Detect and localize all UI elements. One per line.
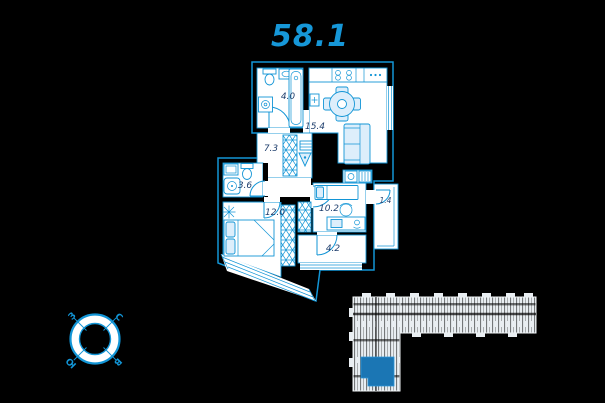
washing-machine-2-icon	[345, 171, 357, 182]
total-area-title: 58.1	[271, 19, 349, 54]
double-bed-icon	[224, 220, 274, 256]
door-opening-balcony	[366, 190, 376, 204]
fridge-icon	[370, 74, 381, 76]
window-kitchen	[387, 86, 393, 130]
label-bathroom: 4.0	[281, 92, 296, 102]
single-bed-icon	[315, 186, 358, 200]
label-kitchen-living: 15.4	[305, 122, 325, 132]
label-loggia: 4.2	[326, 244, 341, 254]
door-opening-bathroom	[268, 128, 290, 133]
window-loggia	[300, 263, 362, 270]
label-bedroom: 12.0	[265, 208, 285, 218]
door-opening-loggia	[317, 232, 337, 235]
label-balcony: 1.4	[380, 196, 392, 205]
shelving-icon	[300, 141, 312, 150]
washing-machine-icon	[259, 97, 273, 112]
plan-canvas: 58.1	[0, 0, 605, 403]
room-balcony	[374, 184, 398, 249]
washbasin-icon	[224, 164, 238, 175]
label-wc: 3.6	[238, 181, 253, 191]
plant-icon	[223, 206, 236, 219]
water-heater-icon	[310, 94, 319, 106]
floor-plan-screenshot: 58.1	[0, 0, 605, 403]
label-bedroom-2: 10.2	[319, 204, 339, 214]
door-opening-bedroom	[264, 197, 280, 202]
wardrobe-b	[298, 202, 311, 232]
desk-icon	[327, 217, 365, 230]
door-opening-wc	[263, 181, 268, 196]
wardrobe-hallway	[283, 135, 297, 176]
toilet-2-icon	[241, 164, 253, 180]
sofa-icon	[344, 124, 370, 164]
label-hallway: 7.3	[264, 144, 279, 154]
compass-rose: С В Ю З	[64, 311, 124, 370]
radiator-icon	[359, 171, 371, 182]
